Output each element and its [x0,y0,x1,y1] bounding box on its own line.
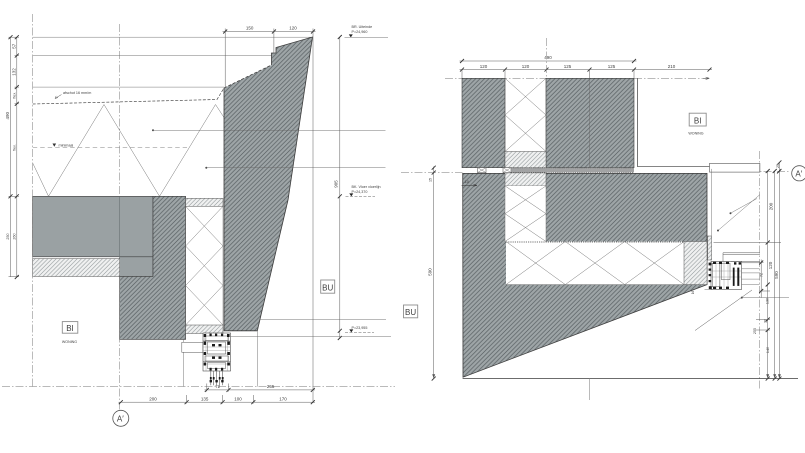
svg-text:135: 135 [201,397,209,402]
svg-text:132: 132 [12,68,17,76]
svg-text:125: 125 [608,64,616,69]
svg-text:P=24,960: P=24,960 [352,30,368,34]
svg-text:BI: BI [66,324,74,333]
svg-text:260: 260 [13,233,17,239]
svg-text:590: 590 [428,268,433,276]
svg-text:250: 250 [6,233,10,239]
svg-text:WONING: WONING [688,131,703,135]
svg-text:BU: BU [322,284,333,293]
svg-text:905: 905 [334,180,339,188]
svg-text:afschot 16 mm/m: afschot 16 mm/m [63,91,91,95]
svg-text:P=23,955: P=23,955 [352,326,368,330]
svg-text:flex.: flex. [13,92,17,99]
svg-text:25: 25 [776,164,780,168]
svg-text:210: 210 [668,64,676,69]
svg-text:minimaal: minimaal [59,144,74,148]
svg-text:490: 490 [5,111,10,119]
svg-text:590: 590 [774,271,779,279]
svg-text:140: 140 [766,347,770,353]
svg-text:BR. Uiteinde: BR. Uiteinde [352,25,373,29]
svg-text:255: 255 [267,384,275,389]
svg-text:WONING: WONING [62,340,77,344]
svg-text:200: 200 [769,202,774,210]
svg-text:120: 120 [289,26,297,31]
svg-text:120: 120 [522,64,530,69]
svg-text:150: 150 [246,26,254,31]
svg-text:120: 120 [768,261,773,269]
svg-text:P=24,370: P=24,370 [352,190,368,194]
svg-text:-10: -10 [464,180,469,184]
svg-text:BI: BI [694,117,702,126]
svg-text:15: 15 [429,178,433,182]
svg-text:130: 130 [766,298,770,304]
svg-text:72: 72 [760,273,764,277]
svg-text:100: 100 [234,397,242,402]
svg-text:A′: A′ [117,414,124,423]
svg-text:120: 120 [480,64,488,69]
svg-text:16: 16 [691,291,695,295]
svg-text:57: 57 [12,43,17,49]
svg-text:BK. Vloer vloerlijn: BK. Vloer vloerlijn [352,185,381,189]
svg-text:flex.: flex. [13,144,17,151]
svg-text:255: 255 [753,328,757,334]
svg-text:125: 125 [564,64,572,69]
svg-text:200: 200 [149,397,157,402]
svg-text:72: 72 [215,384,221,389]
svg-text:BU: BU [405,308,416,317]
svg-text:A′: A′ [795,169,802,178]
svg-text:170: 170 [279,397,287,402]
svg-text:490: 490 [544,55,552,60]
